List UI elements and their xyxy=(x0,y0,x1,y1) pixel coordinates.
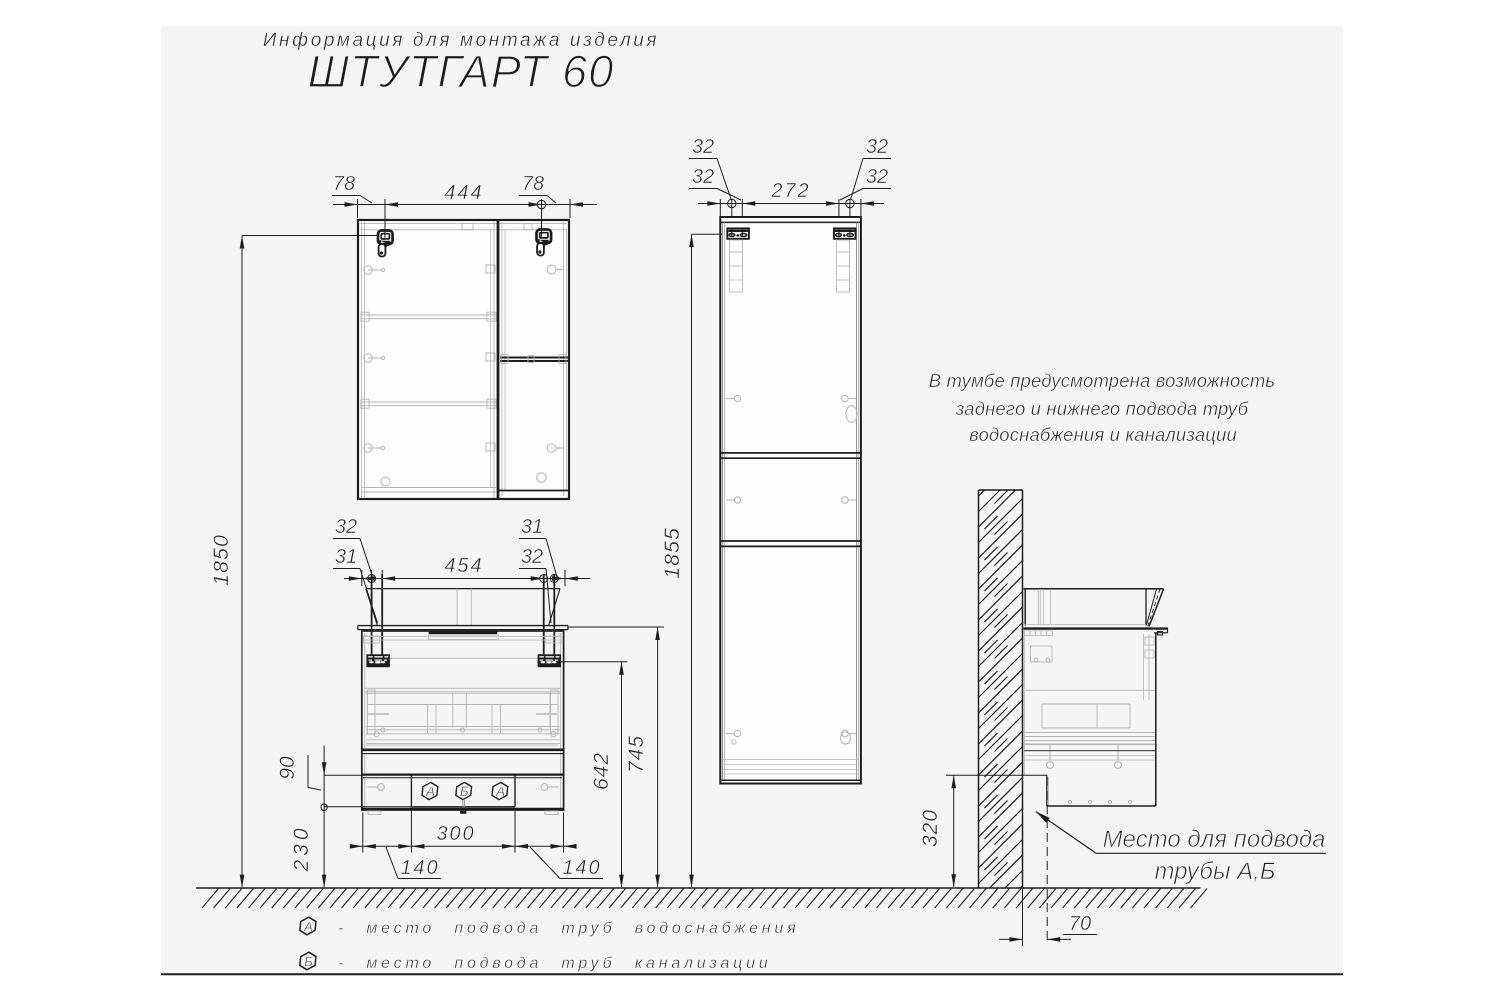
svg-text:31: 31 xyxy=(521,516,543,538)
svg-text:водоснабжения и канализации: водоснабжения и канализации xyxy=(969,424,1237,445)
svg-text:1850: 1850 xyxy=(209,534,233,586)
svg-text:трубы А,Б: трубы А,Б xyxy=(1155,858,1276,885)
svg-text:320: 320 xyxy=(919,809,942,847)
svg-text:272: 272 xyxy=(770,180,810,202)
svg-text:- место подвода труб водоснаб: - место подвода труб водоснабжения xyxy=(338,920,799,937)
svg-text:32: 32 xyxy=(866,166,888,188)
svg-text:78: 78 xyxy=(333,173,355,195)
svg-text:32: 32 xyxy=(521,546,543,568)
svg-text:- место подвода труб канализа: - место подвода труб канализации xyxy=(338,955,772,972)
svg-text:70: 70 xyxy=(1069,913,1091,935)
svg-text:А: А xyxy=(303,919,313,934)
svg-text:444: 444 xyxy=(444,182,483,204)
svg-text:745: 745 xyxy=(625,735,648,773)
svg-text:140: 140 xyxy=(562,857,601,879)
svg-text:31: 31 xyxy=(335,546,357,568)
svg-text:1855: 1855 xyxy=(660,527,684,579)
svg-text:140: 140 xyxy=(400,857,439,879)
svg-text:32: 32 xyxy=(692,136,714,158)
svg-text:642: 642 xyxy=(590,752,613,790)
svg-text:32: 32 xyxy=(335,516,357,538)
svg-text:230: 230 xyxy=(290,824,313,872)
svg-text:Б: Б xyxy=(460,784,469,799)
svg-text:ШТУТГАРТ 60: ШТУТГАРТ 60 xyxy=(308,46,615,97)
svg-text:32: 32 xyxy=(692,166,714,188)
svg-text:А: А xyxy=(495,784,505,799)
svg-text:90: 90 xyxy=(276,756,299,780)
svg-text:Место для подвода: Место для подвода xyxy=(1103,826,1326,853)
svg-text:78: 78 xyxy=(522,173,544,195)
svg-text:А: А xyxy=(425,784,435,799)
svg-text:300: 300 xyxy=(436,823,475,845)
svg-text:454: 454 xyxy=(444,555,483,577)
svg-text:32: 32 xyxy=(866,136,888,158)
svg-text:В тумбе предусмотрена возможно: В тумбе предусмотрена возможность xyxy=(929,370,1276,391)
svg-text:Б: Б xyxy=(304,954,313,969)
svg-text:заднего и нижнего подвода труб: заднего и нижнего подвода труб xyxy=(955,398,1249,419)
